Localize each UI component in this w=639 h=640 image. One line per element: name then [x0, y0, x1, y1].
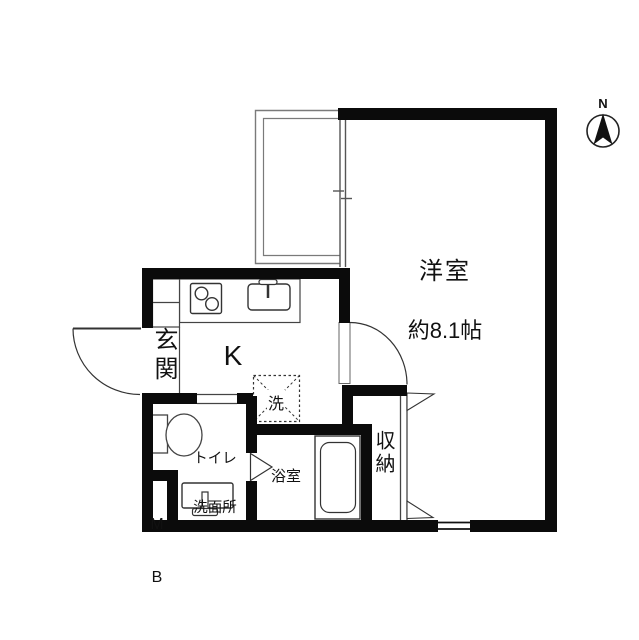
wall-meterbox-top — [142, 470, 168, 481]
western-room-name: 洋室 — [383, 259, 507, 285]
washroom-label: トイレ 洗面所 — [188, 419, 242, 549]
bathroom-door-marker — [251, 454, 273, 481]
closet-door-marker-bottom — [407, 501, 433, 519]
wall-bathroom-top — [247, 424, 371, 435]
wall-washroom-right-upper — [246, 396, 257, 453]
meter-box-label: M B — [146, 481, 168, 622]
western-room-size: 約8.1帖 — [383, 319, 507, 343]
washroom-label-line1: トイレ — [188, 451, 242, 467]
wall-bottom-left-segment — [142, 520, 438, 532]
faucet-handle — [259, 280, 277, 285]
washroom-label-line2: 洗面所 — [188, 500, 242, 516]
wall-bottom-right-segment — [470, 520, 557, 532]
wall-bathroom-right — [361, 424, 372, 520]
wall-closet-left-connector — [342, 396, 353, 424]
wall-washroom-top-left — [142, 393, 197, 404]
closet-door-marker-top — [407, 393, 434, 411]
kitchen-label: K — [216, 340, 250, 372]
entrance-door-arc — [73, 329, 140, 395]
western-room-label: 洋室 約8.1帖 — [383, 224, 507, 377]
wall-washroom-right-lower — [246, 481, 257, 520]
wall-kitchen-top — [142, 268, 350, 279]
stove-burner-1 — [195, 287, 208, 300]
meter-box-label-line2: B — [146, 569, 168, 587]
wall-right — [545, 108, 557, 532]
laundry-label: 洗 — [267, 390, 285, 414]
entrance-label: 玄関 — [151, 327, 175, 385]
wall-washroom-top-right — [237, 393, 253, 404]
closet-label: 収納 — [373, 430, 393, 476]
floor-plan: 洋室 約8.1帖 K 玄関 洗 トイレ 洗面所 M B 浴室 収納 N — [0, 0, 639, 640]
balcony-outer-line — [256, 111, 341, 264]
stove-burner-2 — [206, 298, 219, 311]
room-door-leaf — [339, 323, 350, 384]
bathtub-icon — [321, 443, 356, 513]
plan-linework — [0, 0, 639, 640]
wall-closet-top — [342, 385, 407, 396]
compass-north-label: N — [594, 96, 612, 111]
wall-kitchen-right — [339, 268, 350, 323]
wall-meterbox-right — [167, 470, 178, 520]
meter-box-label-line1: M — [146, 516, 168, 534]
bathroom-label: 浴室 — [271, 465, 301, 486]
wall-western-top — [338, 108, 557, 120]
balcony-inner-line — [264, 119, 341, 256]
